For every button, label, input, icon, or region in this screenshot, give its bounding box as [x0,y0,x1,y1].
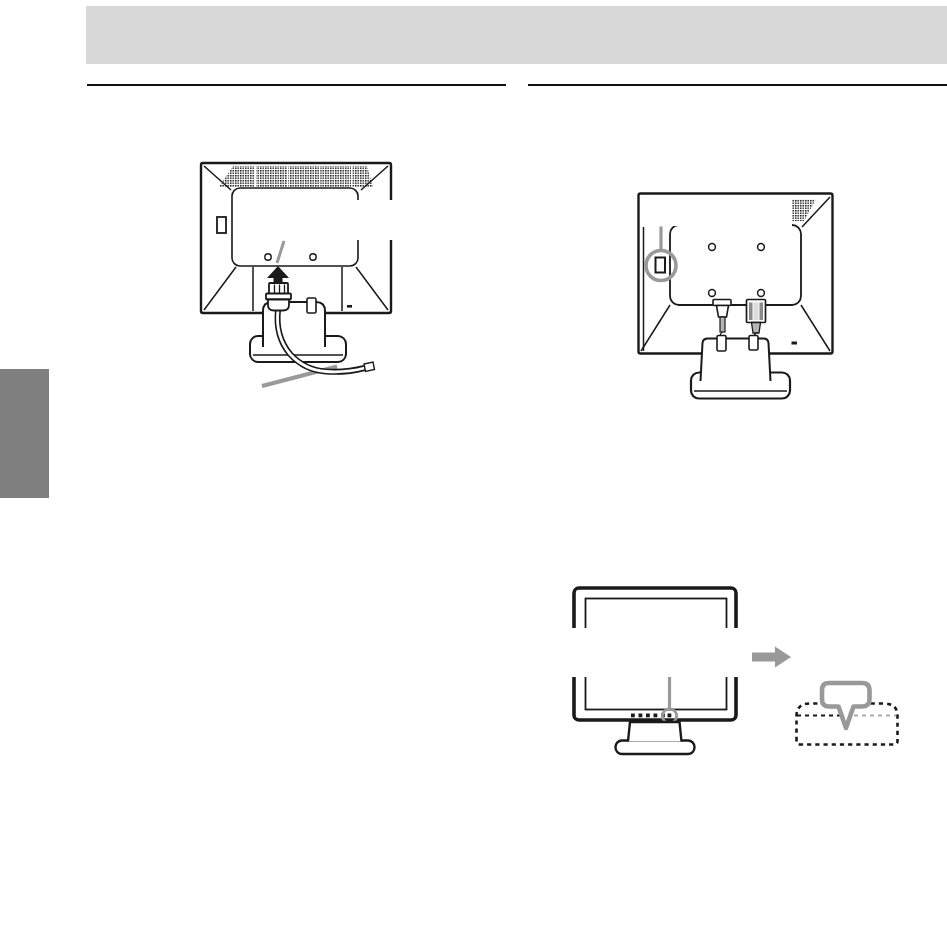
figure-back-view-power-connection [201,163,453,386]
figure-back-view-cable-routing [639,194,833,399]
label-blank-area [353,200,453,240]
figure-osd-callout [752,647,898,745]
manual-page [0,0,947,935]
label-blank-area [664,202,792,226]
signal-connector [747,300,766,339]
speech-bubble-icon [822,683,870,728]
dash-mark [347,305,352,308]
cable-clip [307,298,316,313]
stand-neck [701,339,771,382]
cord-tip [364,362,375,372]
power-connector [713,300,731,338]
label-blank-band [545,628,750,677]
power-plug [266,283,291,311]
figure-front-view-control-button [545,588,750,754]
connector-panel [232,188,358,266]
up-arrow-icon [267,266,289,284]
figure-canvas [0,0,947,935]
vent-grille [792,199,816,221]
stand-base [616,741,695,755]
vesa-panel [670,225,801,305]
cable-clip [749,336,758,351]
security-slot [656,258,666,273]
stand-neck [628,722,682,742]
dash-mark [792,342,798,345]
security-slot [217,217,226,233]
cable-clip [717,336,726,352]
vent-grille [219,166,373,187]
right-arrow-icon [752,647,791,668]
